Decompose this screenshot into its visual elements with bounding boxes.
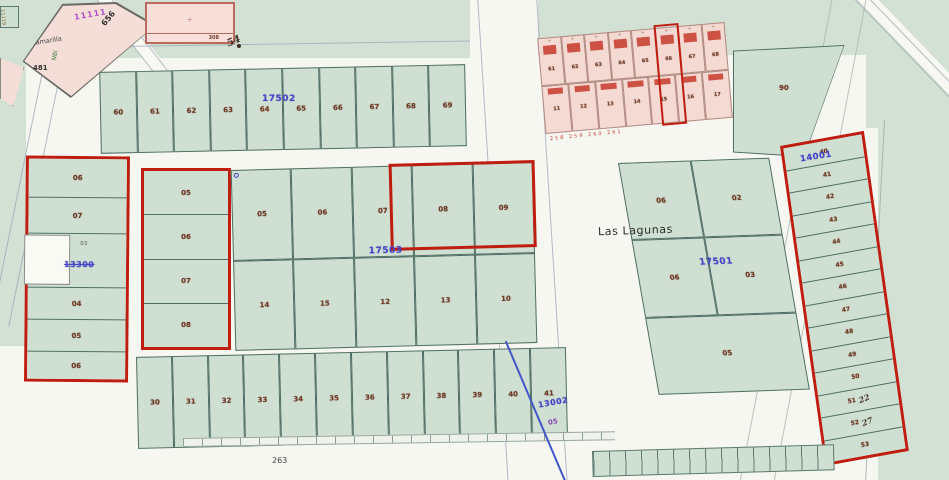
parcel-number: 37 <box>401 393 411 401</box>
parcel-number: 06 <box>317 209 327 217</box>
parcel-number: 30 <box>150 398 160 406</box>
parcel-number: 36 <box>365 393 375 401</box>
parcel-strip[interactable]: 04 <box>28 287 126 320</box>
center-row-bottom: 14 15 12 13 10 <box>233 253 537 351</box>
building-footprint <box>547 87 563 94</box>
selected-center-left-column: 05 06 07 08 <box>141 168 231 350</box>
parcel[interactable]: 31 <box>172 355 210 448</box>
parcel-number: 51 <box>847 397 856 405</box>
parcel-number: 60 <box>113 108 123 116</box>
urban-parcel[interactable]: 13 <box>595 79 626 129</box>
parcel-number: 68 <box>406 102 416 110</box>
parcel-number: 14 <box>633 99 640 106</box>
building-base-strip: 308 <box>147 33 233 42</box>
parcel[interactable]: 03 <box>704 235 796 315</box>
parcel-number: 08 <box>181 321 191 329</box>
building-footprint <box>590 41 604 51</box>
parcel-number: 61 <box>150 108 160 116</box>
ink-dot-icon <box>237 44 241 48</box>
parcel[interactable]: 60 <box>99 71 137 154</box>
parcel[interactable]: 15 <box>293 257 356 349</box>
parcel-number: 11 <box>553 106 560 113</box>
corner-parcel-code: 11119 <box>0 9 7 25</box>
parcel-strip[interactable]: 06 <box>29 159 127 198</box>
parcel-number: 12 <box>580 103 587 110</box>
parcel[interactable]: 36 <box>351 351 389 444</box>
parcel-number: 64 <box>260 105 270 113</box>
cadastral-map: 11111 Camarilla 11119 656 481 NBI + 308 … <box>0 0 949 480</box>
parcel[interactable]: 08 <box>412 164 475 256</box>
parcel-number: 09 <box>499 204 509 212</box>
parcel-number: 10 <box>501 294 511 302</box>
parcel-number: 07 <box>378 207 388 215</box>
building-footprint <box>708 73 724 80</box>
parcel-number: 39 <box>472 391 482 399</box>
parcel[interactable]: 09 <box>472 162 535 254</box>
parcel-number: 90 <box>779 84 789 92</box>
urban-parcel[interactable]: + 68 <box>701 22 729 72</box>
parcel-strip-building[interactable]: 03 13300 <box>28 233 126 288</box>
parcel-number: 63 <box>223 106 233 114</box>
parcel-number: 61 <box>548 66 555 73</box>
polygon-code-17502: 17502 <box>262 94 296 104</box>
parcel[interactable]: 06 <box>291 167 354 259</box>
building-footprint <box>681 76 697 83</box>
top-parcel-row: 60 61 62 63 64 65 66 <box>99 64 467 154</box>
parcel[interactable]: 14 <box>233 259 296 351</box>
plus-mark: + <box>702 24 724 31</box>
parcel-number: 44 <box>832 238 841 246</box>
parcel[interactable]: 61 <box>136 70 174 153</box>
parcel-number: 05 <box>72 331 82 339</box>
parcel-number: 67 <box>369 103 379 111</box>
corner-parcel[interactable]: 11119 <box>0 6 19 28</box>
parcel-number: 34 <box>293 395 303 403</box>
parcel-number: 15 <box>320 299 330 307</box>
building-parcel[interactable]: + 308 <box>145 2 235 44</box>
parcel[interactable]: 62 <box>172 70 210 153</box>
building-footprint <box>601 83 617 90</box>
parcel-number: 06 <box>73 174 83 182</box>
stream-sub-code: 05 <box>547 417 558 427</box>
urban-parcel[interactable]: 15 <box>648 74 679 124</box>
building-footprint <box>628 80 644 87</box>
parcel-number: 45 <box>835 260 844 268</box>
building-footprint <box>660 34 674 44</box>
urban-parcel[interactable]: 11 <box>541 84 572 134</box>
parcel-number: 65 <box>642 58 649 65</box>
parcel[interactable]: 65 <box>282 67 320 150</box>
parcel-strip[interactable]: 06 <box>144 214 228 258</box>
building-footprint <box>683 32 697 42</box>
sub-code: 03 <box>80 241 87 247</box>
plus-mark: + <box>679 26 701 33</box>
parcel-number: 08 <box>438 206 448 214</box>
road-label-481: 481 <box>33 64 48 72</box>
lagunas-row-2: 06 03 <box>632 235 797 318</box>
parcel[interactable]: 35 <box>315 352 353 445</box>
parcel-number: 32 <box>222 397 232 405</box>
parcel-number: 07 <box>181 277 191 285</box>
parcel-number: 49 <box>848 350 857 358</box>
urban-parcel[interactable]: 17 <box>702 70 733 120</box>
parcel-number: 05 <box>257 210 267 218</box>
urban-parcel[interactable]: 16 <box>675 72 706 122</box>
parcel-number: 62 <box>187 107 197 115</box>
parcel-number: 50 <box>851 373 860 381</box>
parcel-number: 52 <box>850 419 859 427</box>
parcel-number: 68 <box>712 52 719 59</box>
parcel-number: 66 <box>333 104 343 112</box>
parcel[interactable]: 30 <box>136 356 174 449</box>
handwritten-mark: 27 <box>860 414 874 428</box>
plus-mark: + <box>538 38 560 45</box>
parcel[interactable]: 02 <box>691 158 783 238</box>
parcel-number: 31 <box>186 398 196 406</box>
polygon-code-17501: 17501 <box>699 257 734 268</box>
parcel[interactable]: 63 <box>209 69 247 152</box>
parcel-number: 13 <box>441 296 451 304</box>
parcel-number: 04 <box>72 299 82 307</box>
reference-number-263: 263 <box>272 456 287 465</box>
building-footprint <box>707 30 721 40</box>
parcel-number: 53 <box>860 440 869 448</box>
parcel[interactable]: 07 <box>351 165 414 257</box>
parcel-number: 64 <box>618 60 625 67</box>
survey-point-icon <box>234 173 239 178</box>
parcel-number: 69 <box>443 101 453 109</box>
parcel[interactable]: 12 <box>354 256 417 348</box>
parcel[interactable]: 69 <box>428 64 466 147</box>
parcel[interactable]: 37 <box>387 350 425 443</box>
building-footprint <box>543 45 557 55</box>
parcel-strip[interactable]: 06 <box>27 351 125 380</box>
parcel-strip[interactable]: 07 <box>28 197 126 234</box>
center-block: 05 06 07 08 09 <box>231 162 538 351</box>
parcel-number: 02 <box>731 194 742 202</box>
parcel-number: 48 <box>845 328 854 336</box>
parcel[interactable]: 67 <box>355 66 393 149</box>
parcel-strip[interactable]: 05 <box>27 319 125 352</box>
plus-mark: + <box>655 28 677 35</box>
parcel-number: 46 <box>838 283 847 291</box>
parcel-number: 13 <box>607 101 614 108</box>
selected-left-block: 06 07 03 13300 04 05 06 <box>24 156 130 383</box>
parcel-number: 62 <box>571 64 578 71</box>
parcel-number: 05 <box>181 189 191 197</box>
parcel-number: 16 <box>687 94 694 101</box>
plus-mark: + <box>585 34 607 41</box>
parcel-number: 03 <box>745 271 756 279</box>
parcel-number: 65 <box>296 105 306 113</box>
parcel-strip[interactable]: 07 <box>144 259 228 303</box>
parcel[interactable]: 64 <box>246 68 284 151</box>
urban-parcel[interactable]: 14 <box>622 77 653 127</box>
parcel-number: 06 <box>71 361 81 369</box>
parcel-number: 67 <box>688 54 695 61</box>
parcel[interactable]: 66 <box>319 66 357 149</box>
building-footprint <box>574 85 590 92</box>
parcel-number: 17 <box>714 92 721 99</box>
parcel[interactable]: 05 <box>645 312 810 395</box>
polygon-code-13300: 13300 <box>64 260 94 269</box>
parcel-number: 06 <box>656 196 667 204</box>
parcel-number: 40 <box>508 390 518 398</box>
parcel-number: 35 <box>329 394 339 402</box>
plus-mark: + <box>562 36 584 43</box>
building-footprint <box>613 39 627 49</box>
handwritten-mark: 22 <box>857 392 871 406</box>
parcel[interactable]: 32 <box>208 354 246 447</box>
parcel-number: 66 <box>665 56 672 63</box>
parcel[interactable]: 33 <box>243 354 281 447</box>
parcel[interactable]: 05 <box>231 168 294 260</box>
parcel-number: 07 <box>73 211 83 219</box>
parcel[interactable]: 38 <box>423 350 461 443</box>
parcel[interactable]: 39 <box>458 349 496 442</box>
parcel-number: 12 <box>380 298 390 306</box>
parcel-strip[interactable]: 05 <box>144 171 228 214</box>
parcel-number: 42 <box>826 193 835 201</box>
polygon-code-17503: 17503 <box>369 245 403 256</box>
parcel-number: 41 <box>822 170 831 178</box>
parcel[interactable]: 13 <box>414 254 477 346</box>
lagunas-row-3: 05 <box>645 312 810 395</box>
parcel-number: 47 <box>841 305 850 313</box>
parcel[interactable]: 68 <box>392 65 430 148</box>
parcel-number: 33 <box>257 396 267 404</box>
urban-cluster: + 61 + 62 + 63 + <box>537 22 733 134</box>
building-code: 308 <box>209 35 219 41</box>
parcel[interactable]: 06 <box>632 238 718 318</box>
bottom-parcel-strip <box>592 444 835 477</box>
parcel-number: 06 <box>181 233 191 241</box>
parcel[interactable]: 10 <box>475 253 538 345</box>
parcel-strip[interactable]: 08 <box>144 303 228 347</box>
place-name-las-lagunas: Las Lagunas <box>598 223 673 239</box>
parcel-number: 43 <box>829 215 838 223</box>
parcel-number: 38 <box>437 392 447 400</box>
parcel-number: 14 <box>259 301 269 309</box>
building-footprint <box>637 37 651 47</box>
plus-mark: + <box>609 32 631 39</box>
parcel-number: 15 <box>660 96 667 103</box>
urban-parcel[interactable]: 12 <box>568 82 599 132</box>
parcel-number: 41 <box>544 389 554 397</box>
parcel-number: 06 <box>669 273 680 281</box>
parcel-number: 63 <box>595 62 602 69</box>
plus-mark: + <box>632 30 654 37</box>
lagunas-block: 06 02 06 03 05 17501 <box>618 158 810 395</box>
building-footprint <box>654 78 670 85</box>
parcel-number: 05 <box>722 349 733 357</box>
building-footprint <box>566 43 580 53</box>
building-mark: + <box>187 15 194 24</box>
parcel[interactable]: 34 <box>279 353 317 446</box>
